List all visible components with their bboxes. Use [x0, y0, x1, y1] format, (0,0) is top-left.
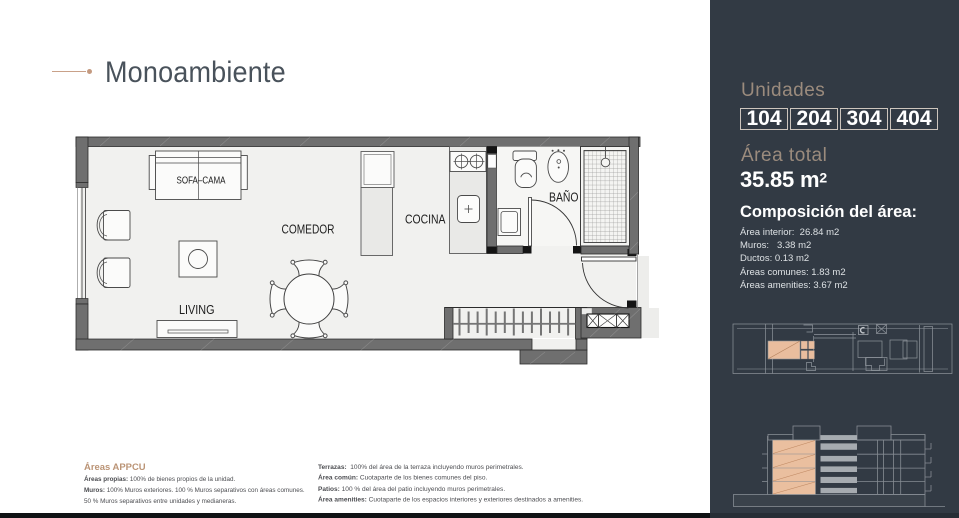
- svg-text:BAÑO: BAÑO: [549, 190, 579, 205]
- svg-text:COMEDOR: COMEDOR: [282, 222, 335, 237]
- svg-text:LIVING: LIVING: [179, 302, 215, 317]
- svg-text:COCINA: COCINA: [405, 212, 446, 227]
- svg-text:SOFA–CAMA: SOFA–CAMA: [177, 175, 226, 187]
